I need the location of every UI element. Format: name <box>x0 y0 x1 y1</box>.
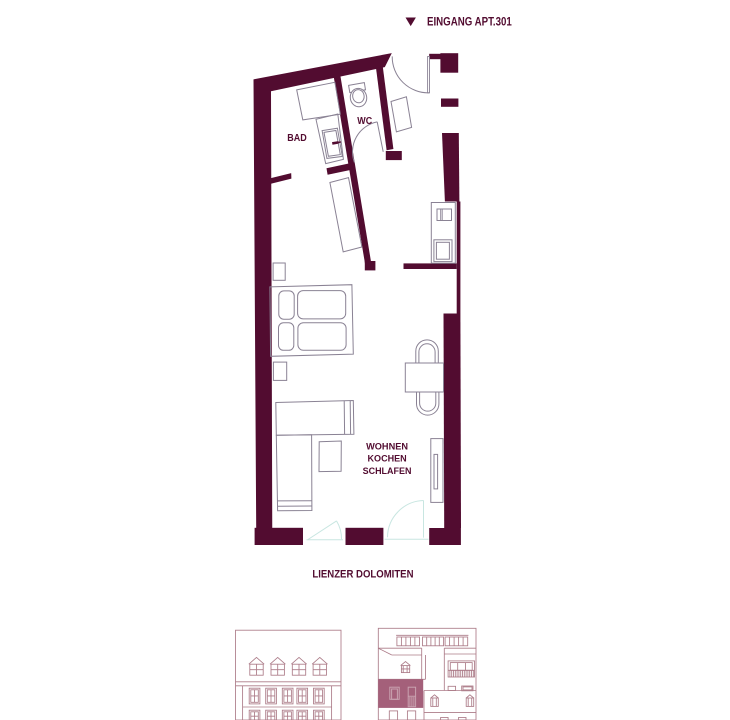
svg-text:LIENZER DOLOMITEN: LIENZER DOLOMITEN <box>312 569 413 581</box>
svg-text:EINGANG APT.301: EINGANG APT.301 <box>427 15 512 29</box>
svg-text:SCHLAFEN: SCHLAFEN <box>363 466 412 476</box>
svg-text:BAD: BAD <box>287 132 307 144</box>
svg-text:WC: WC <box>357 116 372 127</box>
svg-text:KOCHEN: KOCHEN <box>368 453 407 463</box>
svg-text:WOHNEN: WOHNEN <box>366 441 408 451</box>
